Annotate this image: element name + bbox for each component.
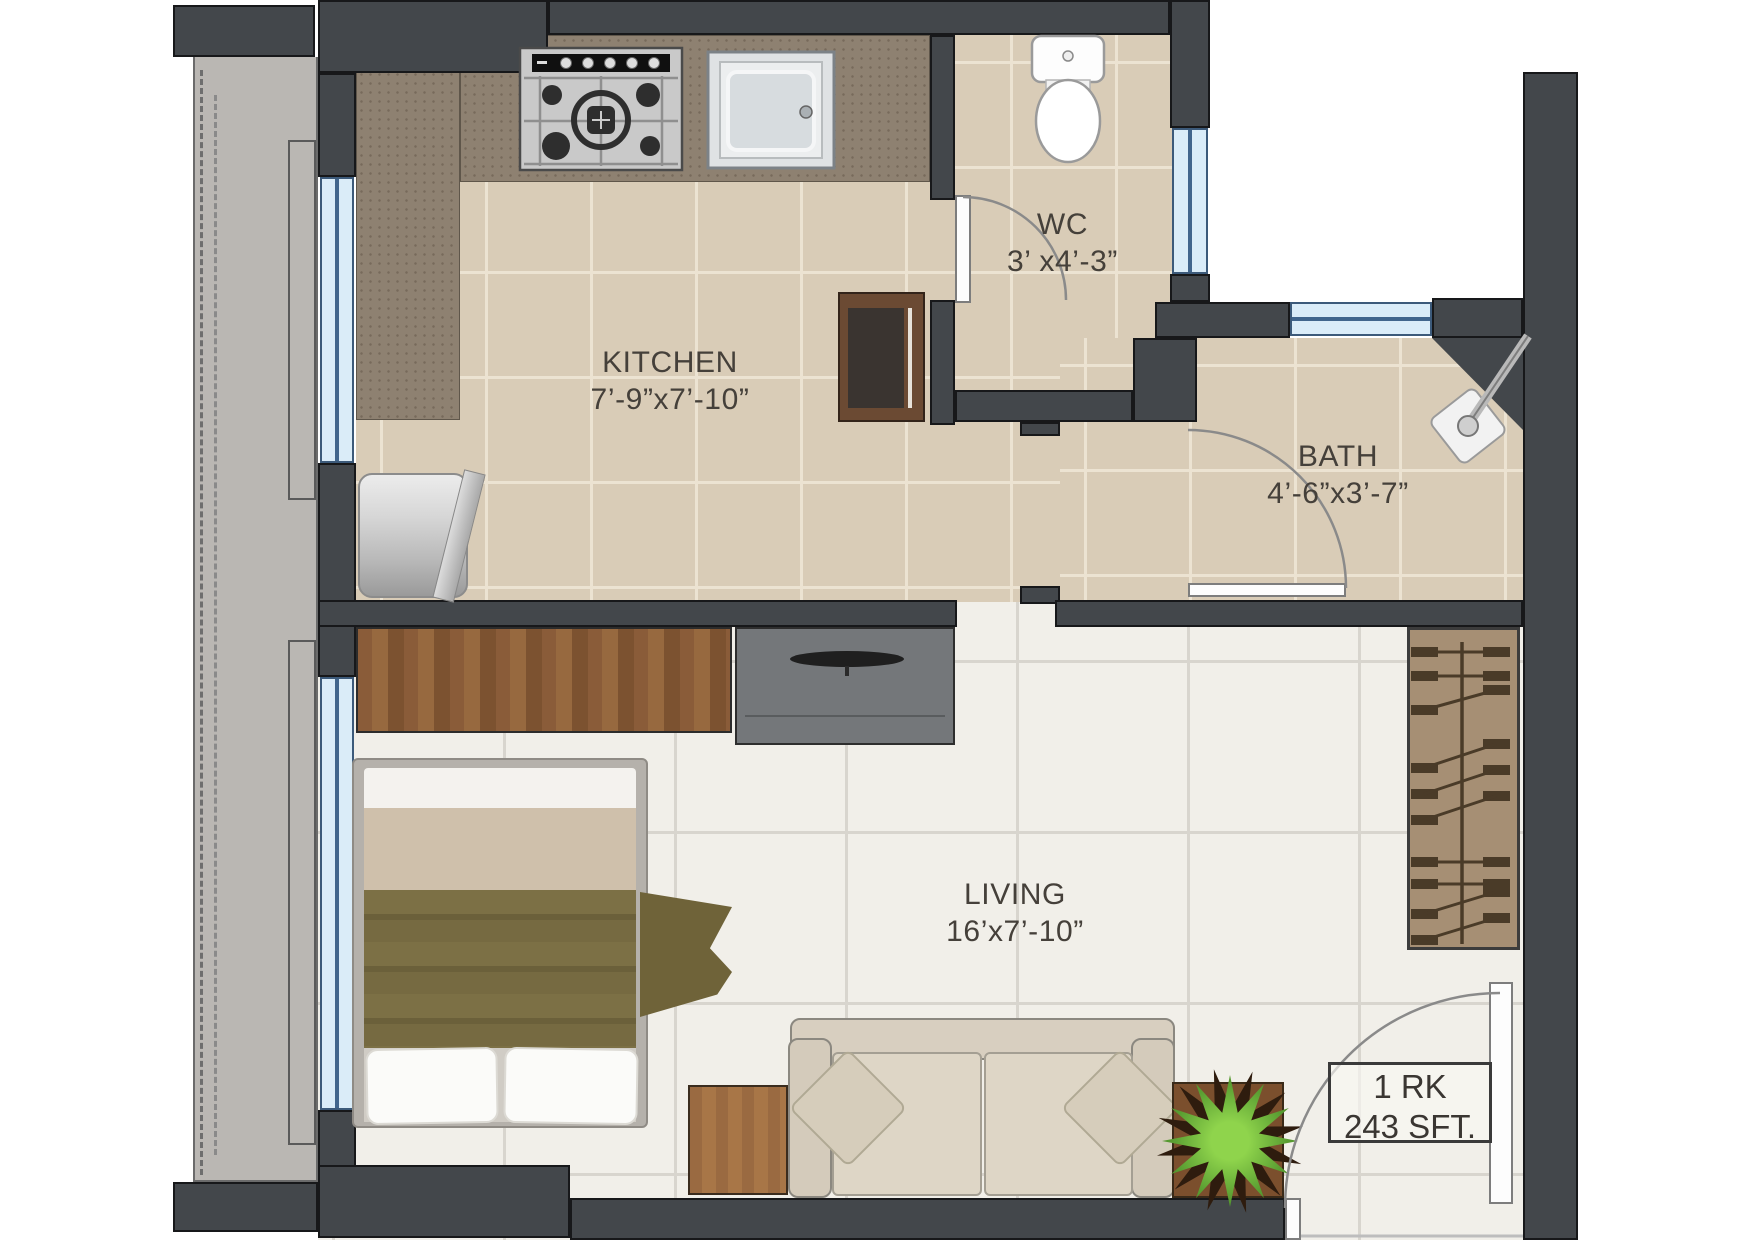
wc-window bbox=[1172, 128, 1208, 274]
side-table-icon bbox=[688, 1085, 788, 1195]
chajja-dashed-line bbox=[200, 70, 203, 1175]
wall-bottom-left-a bbox=[173, 1182, 318, 1232]
wall-top bbox=[548, 0, 1170, 35]
wc-dims: 3’ x4’-3” bbox=[965, 243, 1160, 280]
wall-right bbox=[1523, 72, 1578, 1240]
kitchen-window bbox=[320, 177, 354, 463]
wall-bath-left-bottom bbox=[1020, 586, 1060, 604]
wall-wc-right-bottom bbox=[1170, 274, 1210, 302]
window-frame-outline-top bbox=[288, 140, 316, 500]
wall-bath-top-right bbox=[1432, 298, 1523, 338]
window-frame-outline-bottom bbox=[288, 640, 316, 1145]
unit-area: 243 SFT. bbox=[1331, 1107, 1489, 1147]
wall-left-3 bbox=[318, 1110, 356, 1168]
wall-left-2 bbox=[318, 463, 356, 677]
tv-unit-icon bbox=[735, 627, 955, 745]
unit-type: 1 RK bbox=[1331, 1067, 1489, 1107]
wall-bath-left-top bbox=[1020, 422, 1060, 436]
bath-dims: 4’-6”x3’-7” bbox=[1238, 475, 1438, 512]
wc-label: WC 3’ x4’-3” bbox=[965, 206, 1160, 280]
wall-kitchen-wc-top bbox=[930, 35, 955, 200]
wall-top-left-b bbox=[318, 0, 548, 73]
bed-pillow-right bbox=[503, 1047, 638, 1125]
wall-kitchen-living-right bbox=[1055, 600, 1523, 627]
wall-wc-right-top bbox=[1170, 0, 1210, 128]
wall-wc-south bbox=[955, 390, 1133, 422]
bed-icon bbox=[352, 758, 648, 1128]
wardrobe-icon bbox=[356, 627, 732, 733]
bed-blanket-olive bbox=[364, 890, 636, 1048]
wall-kitchen-living-left bbox=[318, 600, 957, 627]
bath-label: BATH 4’-6”x3’-7” bbox=[1238, 438, 1438, 512]
chajja-dashed-line-2 bbox=[214, 95, 217, 1155]
kitchen-dims: 7’-9”x7’-10” bbox=[520, 381, 820, 418]
entry-door-jamb bbox=[1285, 1198, 1301, 1240]
hanger-rack-icon bbox=[1407, 627, 1520, 950]
floor-plan: KITCHEN 7’-9”x7’-10” WC 3’ x4’-3” BATH 4… bbox=[0, 0, 1754, 1240]
tv-unit-shelf-line bbox=[745, 715, 945, 717]
wall-left-1 bbox=[318, 73, 356, 177]
bed-sheet bbox=[364, 768, 636, 808]
refrigerator-door bbox=[848, 308, 904, 408]
living-name: LIVING bbox=[865, 876, 1165, 913]
bath-name: BATH bbox=[1238, 438, 1438, 475]
bath-door-leaf bbox=[1188, 583, 1346, 597]
bedroom-window bbox=[320, 677, 354, 1110]
wall-bottom bbox=[570, 1198, 1285, 1240]
wall-bath-top-left bbox=[1155, 302, 1290, 338]
wall-top-left-a bbox=[173, 5, 315, 57]
bath-window bbox=[1290, 302, 1432, 336]
wall-kitchen-wc-bottom bbox=[930, 300, 955, 425]
bed-blanket-beige bbox=[364, 808, 636, 890]
refrigerator-icon bbox=[838, 292, 925, 422]
wall-wc-bath-stub bbox=[1133, 338, 1197, 422]
unit-area-box: 1 RK 243 SFT. bbox=[1328, 1062, 1492, 1143]
entry-door-leaf bbox=[1489, 982, 1513, 1204]
wc-name: WC bbox=[965, 206, 1160, 243]
kitchen-name: KITCHEN bbox=[520, 344, 820, 381]
living-dims: 16’x7’-10” bbox=[865, 913, 1165, 950]
living-label: LIVING 16’x7’-10” bbox=[865, 876, 1165, 950]
bed-pillow-left bbox=[365, 1047, 498, 1125]
wall-bottom-left-b bbox=[318, 1165, 570, 1238]
kitchen-label: KITCHEN 7’-9”x7’-10” bbox=[520, 344, 820, 418]
refrigerator-handle bbox=[908, 308, 912, 408]
kitchen-counter-left bbox=[356, 60, 460, 420]
